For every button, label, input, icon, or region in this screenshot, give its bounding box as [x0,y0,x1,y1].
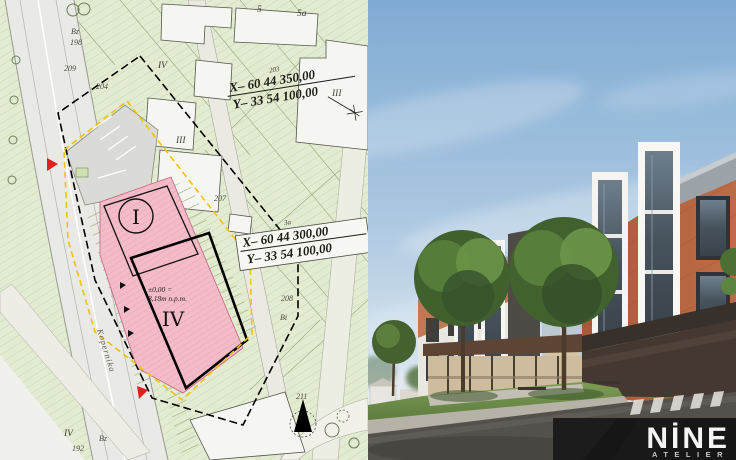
label-roman4-top: IV [157,61,168,71]
label-roman4-bottom: IV [63,429,74,439]
label-roman3-right: III [331,89,342,99]
label-192: 192 [72,444,84,453]
site-plan-svg: I IV ±0,00 = 8,18m n.p.m. 203 X– 60 44 3… [0,0,368,460]
elevation-line2: 8,18m n.p.m. [148,294,187,303]
plot-4-number: IV [162,307,185,331]
plot-1-number: I [132,205,140,229]
label-204: 204 [96,82,108,91]
parcel-3a: 3a [283,218,293,227]
label-211: 211 [296,392,307,401]
label-209: 209 [64,64,76,73]
label-roman3-mid: III [175,136,186,146]
label-208: 208 [281,294,293,303]
label-bldg5a: 5a [297,9,307,19]
label-198: 198 [70,38,82,47]
label-207: 207 [214,194,227,203]
presentation-board: I IV ±0,00 = 8,18m n.p.m. 203 X– 60 44 3… [0,0,736,460]
label-bldg5: 5 [257,5,262,15]
label-bz-bottom: Bz [99,434,108,443]
elevation-line1: ±0,00 = [148,285,172,294]
label-bz-top: Bz [71,27,80,36]
logo-tagline: ATELIER [652,450,729,459]
building-render: NİNE ATELIER [368,0,736,460]
site-plan-map: I IV ±0,00 = 8,18m n.p.m. 203 X– 60 44 3… [0,0,368,460]
label-bi: Bi [280,313,287,322]
logo-bar: NİNE ATELIER [553,418,736,460]
building-render-svg: NİNE ATELIER [368,0,736,460]
